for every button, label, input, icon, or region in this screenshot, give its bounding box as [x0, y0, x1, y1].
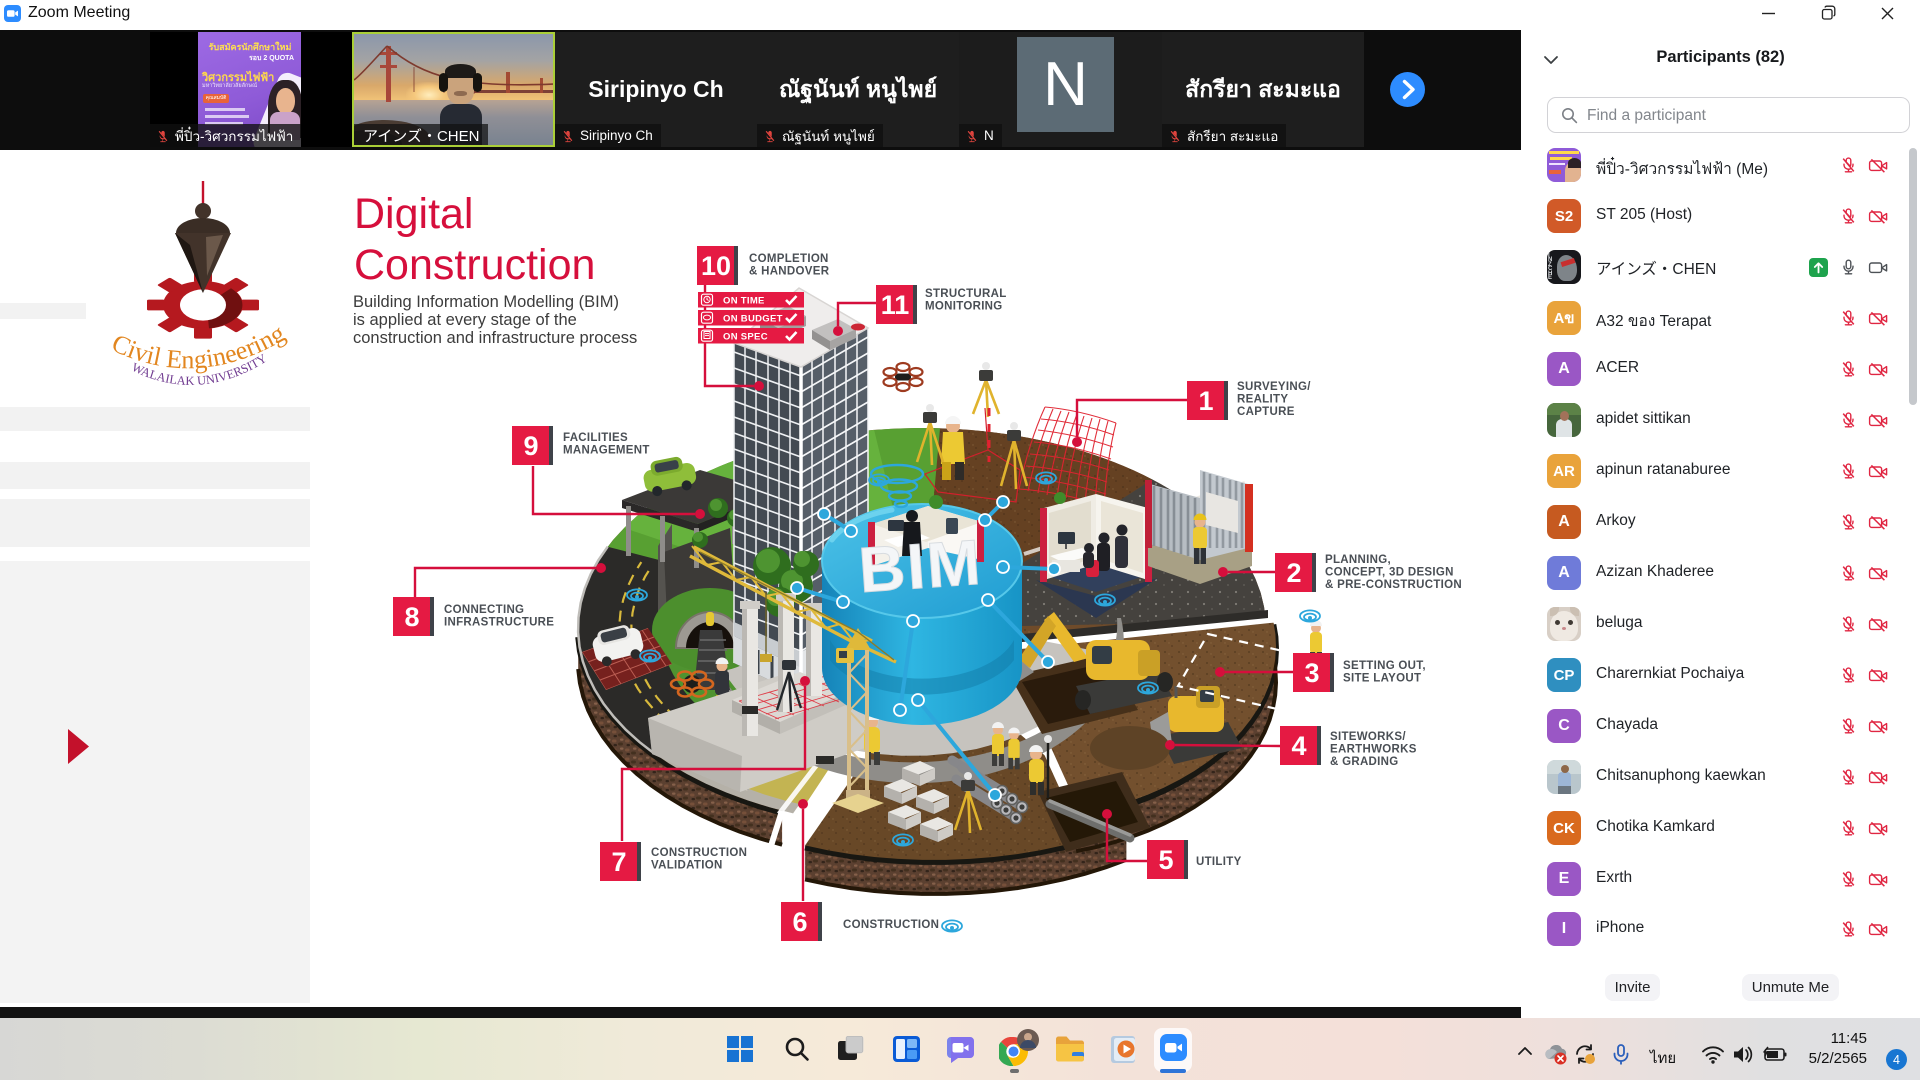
svg-text:1: 1: [1198, 386, 1213, 416]
svg-text:CONNECTINGINFRASTRUCTURE: CONNECTINGINFRASTRUCTURE: [444, 604, 554, 629]
svg-text:2: 2: [1286, 558, 1301, 588]
svg-text:8: 8: [404, 602, 419, 632]
svg-text:CONSTRUCTION: CONSTRUCTION: [843, 919, 939, 931]
svg-text:ON SPEC: ON SPEC: [723, 332, 768, 343]
svg-text:ON TIME: ON TIME: [723, 296, 765, 307]
svg-text:7: 7: [611, 847, 626, 877]
svg-text:PLANNING,CONCEPT, 3D DESIGN& P: PLANNING,CONCEPT, 3D DESIGN& PRE-CONSTRU…: [1325, 554, 1462, 591]
svg-text:10: 10: [701, 251, 731, 281]
svg-text:ON BUDGET: ON BUDGET: [723, 314, 783, 325]
svg-text:5: 5: [1158, 845, 1173, 875]
svg-text:COMPLETION& HANDOVER: COMPLETION& HANDOVER: [749, 253, 830, 278]
svg-text:3: 3: [1304, 658, 1319, 688]
svg-text:STRUCTURALMONITORING: STRUCTURALMONITORING: [925, 288, 1007, 313]
svg-text:SITEWORKS/EARTHWORKS& GRADING: SITEWORKS/EARTHWORKS& GRADING: [1330, 731, 1417, 768]
svg-text:11: 11: [881, 290, 910, 320]
svg-text:CONSTRUCTIONVALIDATION: CONSTRUCTIONVALIDATION: [651, 847, 747, 872]
svg-text:SURVEYING/REALITYCAPTURE: SURVEYING/REALITYCAPTURE: [1237, 381, 1311, 418]
svg-text:FACILITIESMANAGEMENT: FACILITIESMANAGEMENT: [563, 432, 650, 457]
svg-text:9: 9: [523, 431, 538, 461]
svg-text:UTILITY: UTILITY: [1196, 856, 1242, 868]
svg-text:6: 6: [792, 907, 807, 937]
svg-text:4: 4: [1291, 731, 1306, 761]
svg-text:SETTING OUT,SITE LAYOUT: SETTING OUT,SITE LAYOUT: [1343, 660, 1426, 685]
svg-text:BIM: BIM: [856, 526, 984, 606]
